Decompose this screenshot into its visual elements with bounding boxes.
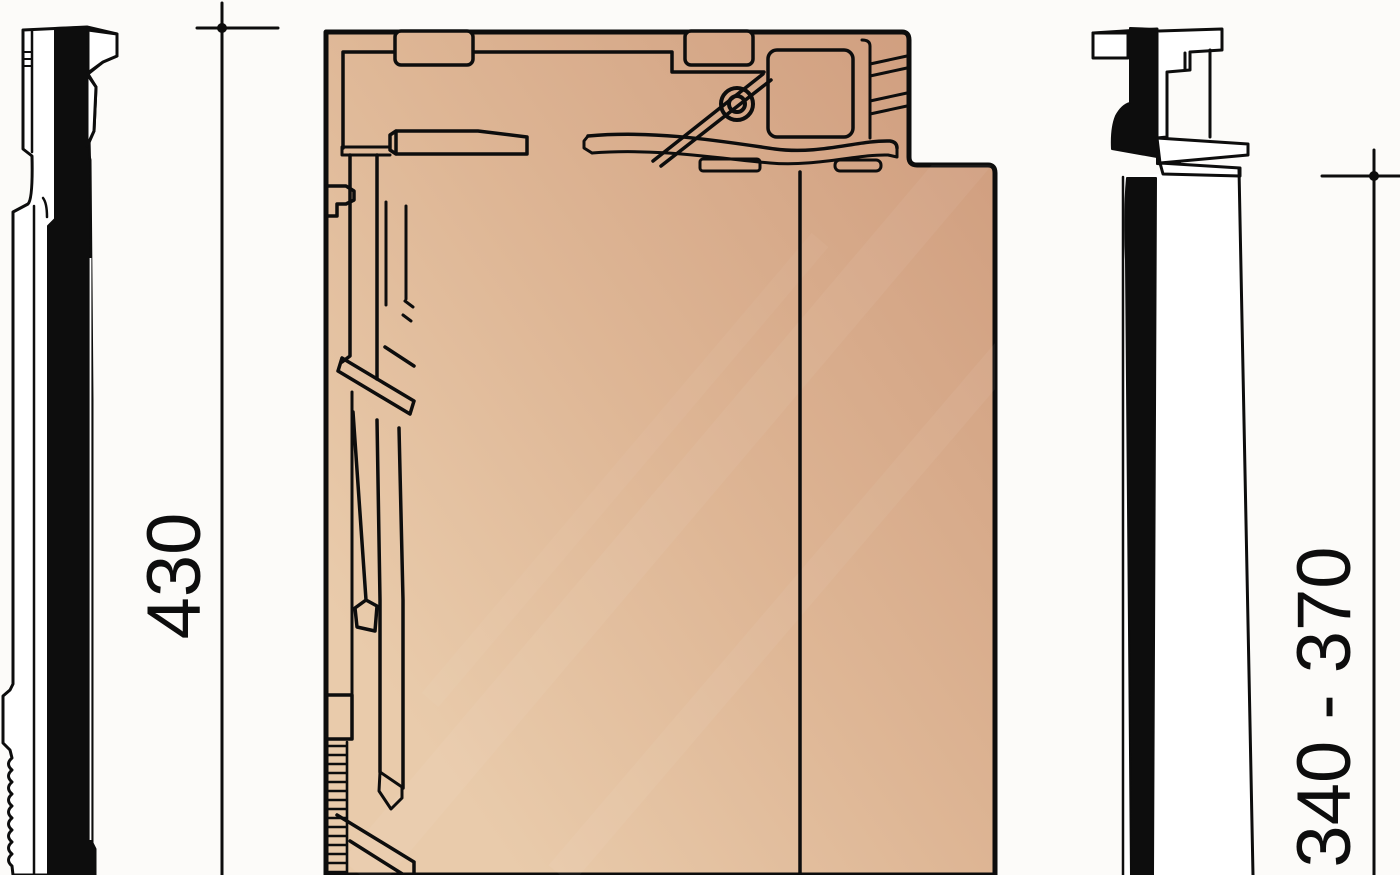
right-profile-cap-left — [1093, 33, 1128, 58]
right-profile-black-body — [1125, 178, 1156, 875]
hanging-lug-left — [395, 31, 473, 65]
hanging-lug-right — [685, 31, 753, 65]
tile-technical-drawing: 430 — [0, 0, 1400, 875]
tile-technical-drawing-page: 430 — [0, 0, 1400, 875]
left-profile-black-core — [48, 27, 95, 875]
dimension-340-370-dot — [1369, 171, 1379, 181]
dimension-430-label: 430 — [132, 513, 217, 640]
dimension-430-dot — [217, 23, 227, 33]
dimension-340-370-label: 340 - 370 — [1282, 546, 1367, 867]
